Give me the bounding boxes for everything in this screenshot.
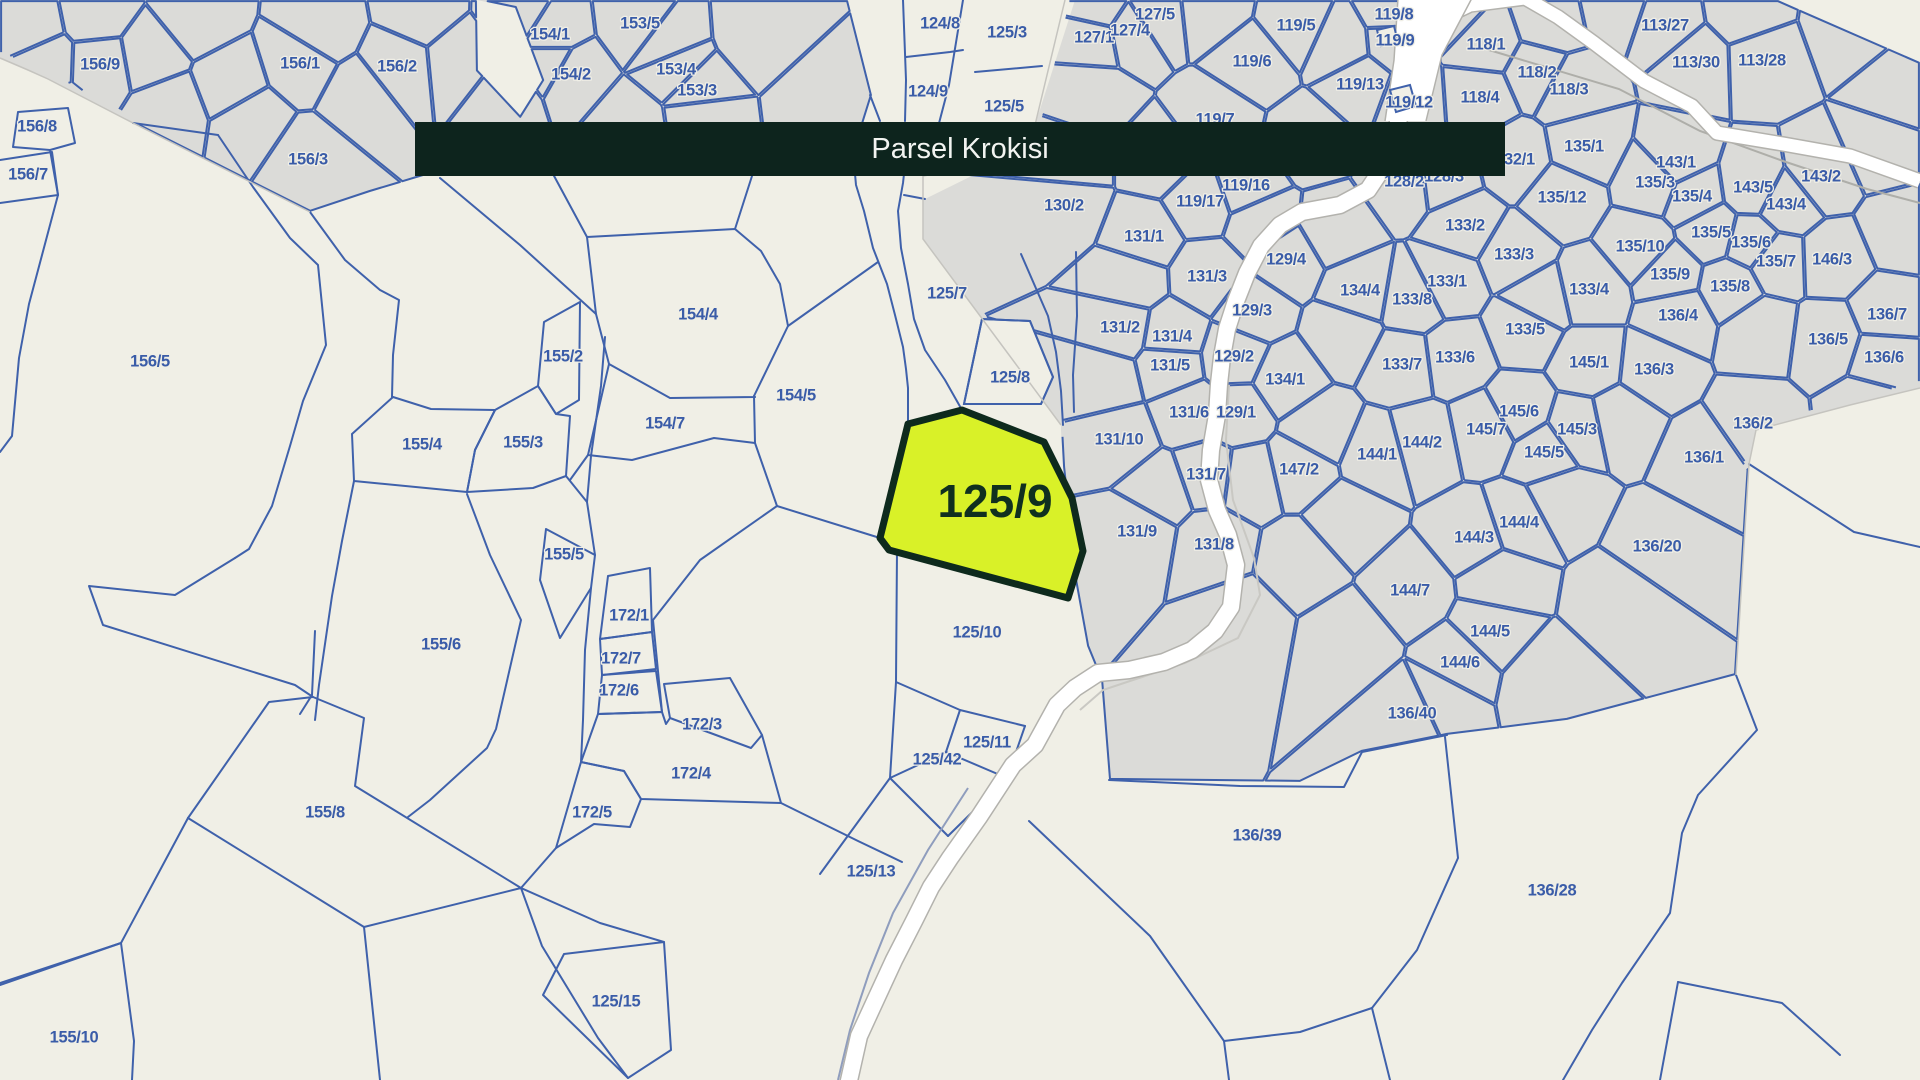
- svg-text:131/5: 131/5: [1150, 357, 1190, 375]
- svg-text:156/5: 156/5: [130, 353, 170, 371]
- svg-text:119/17: 119/17: [1176, 193, 1224, 211]
- svg-text:155/6: 155/6: [421, 636, 461, 654]
- svg-text:133/6: 133/6: [1435, 349, 1475, 367]
- svg-text:119/6: 119/6: [1233, 53, 1272, 71]
- svg-text:119/9: 119/9: [1376, 32, 1415, 50]
- svg-text:143/2: 143/2: [1801, 168, 1841, 186]
- svg-text:155/4: 155/4: [402, 436, 443, 454]
- svg-text:153/4: 153/4: [656, 61, 697, 79]
- svg-text:125/5: 125/5: [984, 98, 1024, 116]
- svg-text:154/4: 154/4: [678, 306, 719, 324]
- svg-text:Parsel Krokisi: Parsel Krokisi: [871, 133, 1048, 165]
- svg-text:136/20: 136/20: [1633, 538, 1682, 556]
- svg-text:135/9: 135/9: [1650, 266, 1690, 284]
- svg-text:154/5: 154/5: [776, 387, 816, 405]
- svg-text:135/12: 135/12: [1538, 189, 1587, 207]
- svg-text:136/1: 136/1: [1684, 449, 1724, 467]
- svg-text:144/1: 144/1: [1357, 446, 1397, 464]
- svg-text:125/10: 125/10: [953, 624, 1002, 642]
- svg-text:119/5: 119/5: [1277, 17, 1316, 35]
- svg-text:119/8: 119/8: [1375, 6, 1414, 24]
- svg-text:156/9: 156/9: [80, 56, 120, 74]
- svg-text:127/1: 127/1: [1074, 29, 1114, 47]
- svg-text:131/4: 131/4: [1152, 328, 1193, 346]
- svg-text:154/1: 154/1: [530, 26, 570, 44]
- svg-text:136/7: 136/7: [1867, 306, 1907, 324]
- svg-text:118/3: 118/3: [1550, 81, 1589, 99]
- svg-text:172/6: 172/6: [599, 682, 639, 700]
- svg-text:156/2: 156/2: [377, 58, 417, 76]
- svg-text:134/4: 134/4: [1340, 282, 1381, 300]
- svg-text:125/42: 125/42: [913, 751, 962, 769]
- svg-text:143/4: 143/4: [1766, 196, 1807, 214]
- svg-text:156/1: 156/1: [280, 55, 320, 73]
- svg-text:172/4: 172/4: [671, 765, 712, 783]
- svg-text:144/6: 144/6: [1440, 654, 1480, 672]
- svg-text:136/5: 136/5: [1808, 331, 1848, 349]
- svg-text:156/8: 156/8: [17, 118, 57, 136]
- svg-text:145/5: 145/5: [1524, 444, 1564, 462]
- svg-text:153/3: 153/3: [677, 82, 717, 100]
- svg-text:144/4: 144/4: [1499, 514, 1540, 532]
- svg-text:156/3: 156/3: [288, 151, 328, 169]
- svg-text:134/1: 134/1: [1265, 371, 1305, 389]
- svg-text:129/3: 129/3: [1232, 302, 1272, 320]
- svg-text:133/5: 133/5: [1505, 321, 1545, 339]
- svg-text:125/3: 125/3: [987, 24, 1027, 42]
- svg-text:131/7: 131/7: [1186, 466, 1226, 484]
- svg-text:135/7: 135/7: [1756, 253, 1796, 271]
- svg-text:136/3: 136/3: [1634, 361, 1674, 379]
- svg-text:131/10: 131/10: [1095, 431, 1144, 449]
- svg-text:131/9: 131/9: [1117, 523, 1157, 541]
- svg-text:133/1: 133/1: [1427, 273, 1467, 291]
- svg-text:153/5: 153/5: [620, 15, 660, 33]
- svg-text:125/15: 125/15: [592, 993, 641, 1011]
- svg-text:144/5: 144/5: [1470, 623, 1510, 641]
- svg-text:136/28: 136/28: [1528, 882, 1577, 900]
- svg-text:135/1: 135/1: [1564, 138, 1604, 156]
- svg-text:147/2: 147/2: [1279, 461, 1319, 479]
- svg-text:118/1: 118/1: [1467, 36, 1506, 54]
- svg-text:133/3: 133/3: [1494, 246, 1534, 264]
- svg-text:127/4: 127/4: [1110, 22, 1151, 40]
- svg-text:155/5: 155/5: [544, 546, 584, 564]
- svg-text:125/13: 125/13: [847, 863, 896, 881]
- svg-text:156/7: 156/7: [8, 166, 48, 184]
- svg-text:145/1: 145/1: [1569, 354, 1609, 372]
- svg-text:145/3: 145/3: [1557, 421, 1597, 439]
- svg-text:135/6: 135/6: [1731, 234, 1771, 252]
- svg-text:145/7: 145/7: [1466, 421, 1506, 439]
- svg-text:135/8: 135/8: [1710, 278, 1750, 296]
- svg-text:135/4: 135/4: [1672, 188, 1713, 206]
- svg-text:135/3: 135/3: [1635, 174, 1675, 192]
- svg-text:145/6: 145/6: [1499, 403, 1539, 421]
- svg-text:136/39: 136/39: [1233, 827, 1282, 845]
- svg-text:131/6: 131/6: [1169, 404, 1209, 422]
- svg-text:125/11: 125/11: [963, 734, 1011, 752]
- svg-text:131/2: 131/2: [1100, 319, 1140, 337]
- svg-text:129/4: 129/4: [1266, 251, 1307, 269]
- svg-text:119/12: 119/12: [1385, 94, 1433, 112]
- svg-text:172/3: 172/3: [682, 716, 722, 734]
- svg-text:125/9: 125/9: [937, 475, 1052, 527]
- svg-text:124/8: 124/8: [920, 15, 960, 33]
- svg-text:144/2: 144/2: [1402, 434, 1442, 452]
- svg-text:135/5: 135/5: [1691, 224, 1731, 242]
- svg-text:124/9: 124/9: [908, 83, 948, 101]
- svg-text:136/4: 136/4: [1658, 307, 1699, 325]
- svg-text:131/3: 131/3: [1187, 268, 1227, 286]
- svg-text:146/3: 146/3: [1812, 251, 1852, 269]
- svg-text:136/2: 136/2: [1733, 415, 1773, 433]
- svg-text:154/2: 154/2: [551, 66, 591, 84]
- svg-text:154/7: 154/7: [645, 415, 685, 433]
- svg-text:130/2: 130/2: [1044, 197, 1084, 215]
- svg-text:135/10: 135/10: [1616, 238, 1665, 256]
- svg-text:143/1: 143/1: [1656, 154, 1696, 172]
- svg-text:136/40: 136/40: [1388, 705, 1437, 723]
- svg-text:155/3: 155/3: [503, 434, 543, 452]
- svg-text:133/7: 133/7: [1382, 356, 1422, 374]
- svg-text:133/2: 133/2: [1445, 217, 1485, 235]
- svg-text:136/6: 136/6: [1864, 349, 1904, 367]
- svg-text:133/4: 133/4: [1569, 281, 1610, 299]
- svg-text:113/27: 113/27: [1641, 17, 1689, 35]
- svg-text:144/7: 144/7: [1390, 582, 1430, 600]
- svg-text:155/2: 155/2: [543, 348, 583, 366]
- svg-text:131/8: 131/8: [1194, 536, 1234, 554]
- svg-text:155/10: 155/10: [50, 1029, 99, 1047]
- svg-text:119/16: 119/16: [1222, 177, 1270, 195]
- svg-text:118/4: 118/4: [1461, 89, 1501, 107]
- svg-text:144/3: 144/3: [1454, 529, 1494, 547]
- svg-text:125/8: 125/8: [990, 369, 1030, 387]
- svg-text:118/2: 118/2: [1518, 64, 1557, 82]
- svg-text:113/28: 113/28: [1738, 52, 1786, 70]
- svg-text:129/2: 129/2: [1214, 348, 1254, 366]
- svg-text:131/1: 131/1: [1124, 228, 1164, 246]
- svg-text:119/13: 119/13: [1336, 76, 1384, 94]
- svg-text:155/8: 155/8: [305, 804, 345, 822]
- svg-text:172/7: 172/7: [601, 650, 641, 668]
- svg-text:172/1: 172/1: [609, 607, 649, 625]
- svg-text:125/7: 125/7: [927, 285, 967, 303]
- svg-text:113/30: 113/30: [1672, 54, 1720, 72]
- svg-text:172/5: 172/5: [572, 804, 612, 822]
- svg-text:143/5: 143/5: [1733, 179, 1773, 197]
- svg-text:133/8: 133/8: [1392, 291, 1432, 309]
- svg-text:129/1: 129/1: [1216, 404, 1256, 422]
